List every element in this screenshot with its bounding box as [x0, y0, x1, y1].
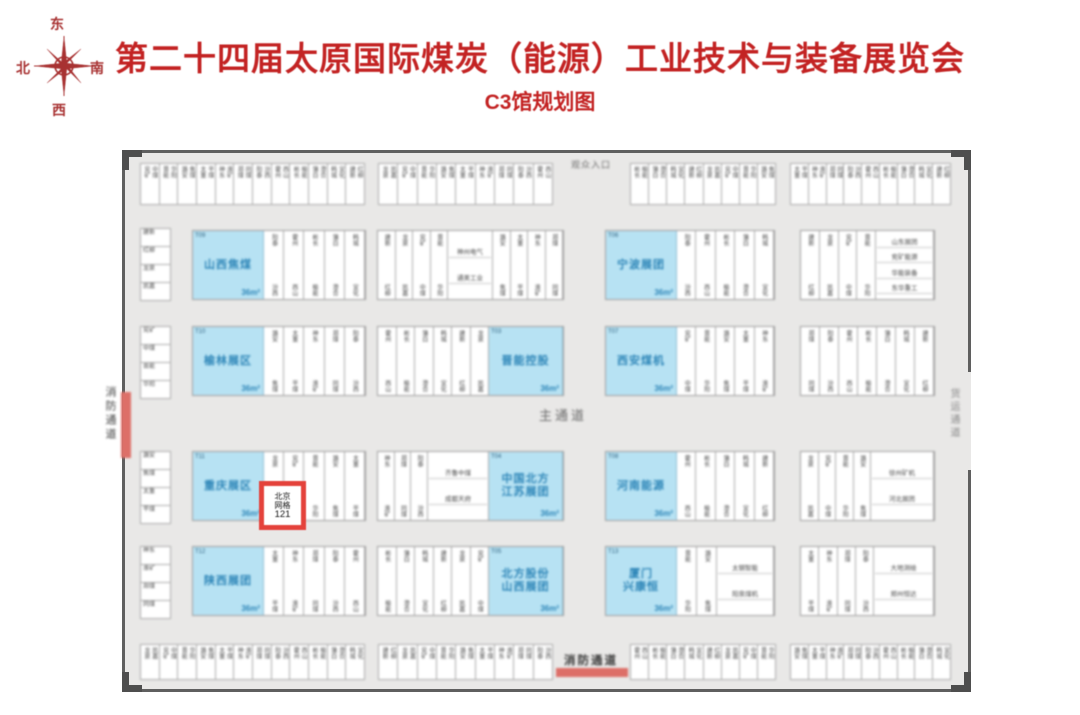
booth-cell: 太重平煤	[455, 163, 475, 205]
booth-text: 华能装备	[877, 267, 932, 279]
booth-cell: 龙泉凯嘉	[471, 327, 490, 395]
booth-cell: 郑煤同煤	[513, 644, 533, 680]
booth-number: T13	[608, 549, 618, 555]
booth-cell: 太重平煤	[196, 163, 216, 205]
booth-text: 神东	[497, 647, 503, 679]
booth-cell: 韩城宜化	[896, 327, 915, 395]
booth-text: 神州电气	[449, 246, 491, 258]
booth-cell: 太重平煤	[475, 644, 495, 680]
booth-text: 蒲白	[917, 647, 923, 679]
booth-cell: 晋能华阳	[739, 163, 758, 205]
booth-text: 中煤	[151, 166, 157, 204]
booth-text: 红柳	[921, 380, 927, 392]
booth-text: 太重	[291, 330, 297, 342]
booth-cell: 霍州西山	[677, 452, 696, 520]
booth-cell: 太重平煤	[735, 327, 754, 395]
booth-cell: 太重平煤	[808, 644, 827, 680]
booth-cell: 彬长榆能	[897, 644, 916, 680]
booth-text: 龙泉	[143, 647, 149, 679]
booth-cell: 神东	[140, 546, 171, 565]
booth-text: 太重	[271, 550, 277, 562]
island-block: T08河南能源36m²霍州西山彬长榆能蒲白澄合韩城宜化建新红柳	[605, 451, 775, 521]
booth-text: 平煤	[467, 166, 473, 204]
page-subtitle: C3馆规划图	[0, 86, 1080, 116]
blue-booth-label: 中国北方	[502, 473, 550, 486]
booth-area-label: 36m²	[241, 384, 260, 393]
booth-cell: 太重平煤	[511, 231, 529, 299]
booth-cell: 蒲白澄合	[308, 163, 328, 205]
booth-text: 平煤	[207, 166, 213, 204]
booth-cell: 阳泰汾西	[345, 327, 365, 395]
booth-cell: 兖矿中煤	[739, 644, 758, 680]
booth-text: 彬长	[703, 455, 709, 467]
booth-cell: 韩城宜化	[932, 644, 951, 680]
booth-cell: 郑煤同煤	[838, 547, 856, 615]
booth-cell: 龙泉凯嘉	[140, 644, 160, 680]
booth-cell: 太重	[140, 487, 171, 506]
booth-cell: 建新红柳	[703, 644, 722, 680]
booth-text: 龙泉	[271, 455, 277, 467]
booth-text: 太重	[218, 647, 224, 679]
booth-text: 神东	[761, 330, 767, 342]
booth-cell: 阳泰汾西	[677, 231, 696, 299]
booth-text: 龙泉	[723, 647, 729, 679]
booth-cell: 潞安焦煤	[716, 327, 735, 395]
booth-cell: 阳泰汾西	[411, 452, 428, 520]
booth-text: 兖矿	[741, 647, 747, 679]
booth-text: 汾西	[544, 647, 550, 679]
booth-text: 凯嘉	[476, 380, 482, 392]
island-block: 建新红柳龙泉凯嘉兖矿中煤晋能华阳山东展团兖矿能源华能装备东华重工	[800, 230, 935, 300]
booth-text: 韩城	[741, 455, 747, 467]
blue-booth-label: 西安煤机	[617, 355, 665, 368]
booth-text: 淮矿	[505, 647, 511, 679]
booth-text: 建新	[921, 330, 927, 342]
booth-text: 同煤	[525, 647, 531, 679]
booth-text: 平煤	[818, 647, 824, 679]
blue-booth: T04中国北方江苏展团36m²	[489, 452, 563, 520]
booth-text: 韩城	[351, 234, 357, 246]
booth-text: 淮矿	[244, 647, 250, 679]
booth-cell: 晋能华阳	[436, 644, 456, 680]
booth-text: 韩城	[687, 647, 693, 679]
booth-text: 建新	[381, 647, 387, 679]
booth-text: 潞安	[704, 550, 710, 562]
perimeter-strip: 龙泉凯嘉兖矿中煤晋能华阳潞安焦煤太重平煤神东淮矿郑煤同煤阳泰汾西霍州西山	[378, 163, 552, 205]
booth-text: 焦煤	[859, 505, 865, 517]
booth-text: 神东	[810, 166, 816, 204]
booth-text: 晋能	[180, 647, 186, 679]
booth-text: 西山	[683, 505, 689, 517]
booth-text: 中煤	[418, 284, 424, 296]
booth-text: 成都天府	[429, 493, 487, 505]
booth-cell: 太重平煤	[801, 547, 819, 615]
booth-text: 郑州恒达	[875, 588, 932, 600]
booth-text: 榆能	[300, 166, 306, 204]
booth-text: 彬长	[722, 234, 728, 246]
booth-text: 齐鲁中煤	[429, 467, 487, 479]
booth-text: 彬长	[651, 647, 657, 679]
booth-cell: 龙泉凯嘉	[703, 163, 722, 205]
booth-cell: 阳泰汾西	[513, 163, 533, 205]
booth-area-label: 36m²	[241, 288, 260, 297]
booth-text: 凯嘉	[731, 647, 737, 679]
booth-cell-wide: 齐鲁中煤成都天府	[428, 452, 489, 520]
booth-cell: 潞安	[140, 451, 171, 470]
booth-cell: 神东淮矿	[378, 452, 395, 520]
booth-cell: 晋能	[140, 362, 171, 381]
perimeter-strip: 太重平煤神东淮矿郑煤同煤阳泰汾西霍州西山彬长榆能蒲白澄合韩城宜化建新红柳	[790, 163, 950, 205]
blue-booth: T07西安煤机36m²	[606, 327, 677, 395]
booth-text: 霍州	[274, 166, 280, 204]
booth-text: 阳泰	[683, 234, 689, 246]
booth-text: 宜化	[421, 600, 427, 612]
booth-cell: 潞安焦煤	[436, 163, 456, 205]
booth-cell: 潞安焦煤	[854, 452, 872, 520]
booth-text: 霍州	[864, 166, 870, 204]
blue-booth-label: 北方股份	[502, 568, 550, 581]
booth-text: 蒲白	[331, 234, 337, 246]
booth-text: 蒲白	[421, 330, 427, 342]
booth-cell: 霍州西山	[271, 163, 291, 205]
booth-text: 潞安	[760, 166, 766, 204]
booth-text: 西山	[384, 380, 390, 392]
booth-text: 澄合	[677, 647, 683, 679]
booth-text: 郑煤	[807, 330, 813, 342]
booth-text: 同煤	[807, 380, 813, 392]
booth-cell: 阳泰汾西	[861, 644, 880, 680]
booth-text: 太重	[793, 166, 799, 204]
booth-text: 西山	[281, 166, 287, 204]
booth-text: 兖矿能源	[877, 251, 932, 263]
booth-text: 澄合	[338, 647, 344, 679]
booth-text: 神东	[311, 330, 317, 342]
blue-booth-label: 晋能控股	[502, 355, 550, 368]
booth-text: 兖矿	[291, 455, 297, 467]
booth-text: 同煤	[244, 166, 250, 204]
booth-cell: 神东淮矿	[494, 644, 514, 680]
booth-cell: 霍州西山	[861, 163, 880, 205]
booth-cell: 神东淮矿	[215, 163, 235, 205]
booth-text: 西山	[300, 647, 306, 679]
booth-cell: 建新红柳	[378, 644, 398, 680]
blue-booth-label: 陕西展团	[204, 575, 252, 588]
booth-text: 中煤	[476, 600, 482, 612]
blue-booth-label: 榆林展区	[204, 355, 252, 368]
booth-text: 郑煤	[331, 330, 337, 342]
booth-cell: 韩城宜化	[684, 644, 703, 680]
booth-text: 宜化	[695, 647, 701, 679]
booth-text: 韩城	[439, 330, 445, 342]
booth-area-label: 36m²	[654, 288, 673, 297]
booth-cell: 蒲白澄合	[666, 644, 685, 680]
booth-text: 兖矿	[824, 455, 830, 467]
perimeter-strip: 建新红柳龙泉凯嘉	[140, 228, 171, 300]
booth-cell: 潞安焦煤	[325, 452, 345, 520]
booth-text: 红柳	[356, 166, 362, 204]
booth-cell: 彬长榆能	[308, 644, 328, 680]
booth-text: 彬长	[311, 234, 317, 246]
booth-text: 兖矿	[143, 166, 149, 204]
booth-text: 大地测绘	[875, 562, 932, 574]
booth-number: T07	[608, 329, 618, 335]
booth-cell: 兖矿中煤	[721, 163, 740, 205]
booth-text: 蒲白	[402, 550, 408, 562]
island-block: 太重平煤神东淮矿郑煤同煤阳泰汾西大地测绘郑州恒达	[800, 546, 935, 616]
booth-text: 霍州	[292, 647, 298, 679]
booth-cell: 霍州西山	[839, 327, 858, 395]
booth-cell: 蒲白澄合	[397, 547, 416, 615]
booth-text: 榆能	[384, 600, 390, 612]
booth-text: 蒲白	[741, 234, 747, 246]
highlight-booth: 北京 网格 121	[259, 481, 306, 530]
booth-text: 西山	[845, 380, 851, 392]
booth-cell: 兖矿中煤	[819, 452, 837, 520]
booth-text: 榆能	[311, 284, 317, 296]
booth-text: 蒲白	[722, 455, 728, 467]
booth-text: 建新	[761, 455, 767, 467]
booth-cell: 彬长榆能	[648, 644, 667, 680]
booth-cell: 神东淮矿	[528, 231, 546, 299]
booth-cell: 彬长榆能	[378, 547, 397, 615]
booth-text: 中煤	[749, 647, 755, 679]
booth-text: 中煤	[409, 166, 415, 204]
booth-text: 同煤	[836, 166, 842, 204]
booth-text: 龙泉	[806, 455, 812, 467]
booth-text: 汾西	[854, 166, 860, 204]
booth-text: 华阳	[863, 284, 869, 296]
booth-cell: 韩城宜化	[327, 163, 347, 205]
booth-cell: 霍州西山	[345, 547, 365, 615]
booth-cell: 郑煤同煤	[801, 327, 820, 395]
booth-number: T11	[195, 454, 205, 460]
highlight-booth-number: 121	[275, 510, 291, 519]
booth-text: 淮矿	[761, 380, 767, 392]
booth-text: 神东	[533, 234, 539, 246]
blue-booth-label: 重庆展区	[204, 480, 252, 493]
booth-text: 彬长	[402, 330, 408, 342]
booth-text: 汾西	[683, 284, 689, 296]
booth-text: 平煤	[741, 380, 747, 392]
booth-text: 华阳	[169, 166, 175, 204]
booth-text: 焦煤	[467, 647, 473, 679]
booth-cell: 兖矿	[140, 326, 171, 345]
island-block: T06宁波展团36m²阳泰汾西霍州西山彬长榆能蒲白澄合韩城宜化	[605, 230, 775, 300]
booth-area-label: 36m²	[540, 509, 559, 518]
booth-cell: 霍州西山	[696, 231, 715, 299]
blue-booth: T08河南能源36m²	[606, 452, 677, 520]
booth-text: 韩城	[935, 647, 941, 679]
booth-text: 中煤	[824, 505, 830, 517]
booth-text: 郑煤	[399, 455, 405, 467]
booth-cell: 神东淮矿	[284, 547, 304, 615]
booth-text: 郑煤	[828, 166, 834, 204]
booth-cell: 神东淮矿	[475, 163, 495, 205]
booth-text: 潞安	[199, 647, 205, 679]
booth-text: 兖矿	[723, 166, 729, 204]
booth-text: 澄合	[741, 284, 747, 296]
booth-text: 华阳	[841, 505, 847, 517]
booth-text: 郑煤	[846, 647, 852, 679]
booth-text: 宜化	[338, 166, 344, 204]
booth-text: 彬长	[384, 550, 390, 562]
blue-booth-label: 山西展团	[502, 581, 550, 594]
blue-booth: T06宁波展团36m²	[606, 231, 677, 299]
booth-text: 龙泉	[476, 330, 482, 342]
booth-text: 淮矿	[836, 647, 842, 679]
booth-cell: 韩城宜化	[345, 644, 365, 680]
booth-cell-group: 霍州西山彬长榆能蒲白澄合韩城宜化建新红柳龙泉凯嘉	[378, 327, 489, 395]
booth-text: 晋能	[741, 166, 747, 204]
booth-text: 晋能	[311, 455, 317, 467]
booth-cell: 晋能华阳	[836, 452, 854, 520]
booth-text: 宜化	[902, 380, 908, 392]
booth-text: 淮矿	[225, 166, 231, 204]
booth-text: 宜化	[439, 380, 445, 392]
booth-text: 华阳	[447, 647, 453, 679]
perimeter-strip: 建新红柳龙泉凯嘉兖矿中煤晋能华阳潞安焦煤太重平煤神东淮矿郑煤同煤阳泰汾西	[378, 644, 552, 680]
right-freight-exit-label: 货运通道	[946, 388, 961, 440]
booth-text: 郑煤	[255, 647, 261, 679]
booth-cell: 潞安焦煤	[697, 547, 717, 615]
booth-text: 阳泰	[255, 166, 261, 204]
booth-text: 郑煤	[843, 550, 849, 562]
blue-booth: T10榆林展区36m²	[193, 327, 264, 395]
booth-text: 建新	[439, 550, 445, 562]
booth-cell: 建新红柳	[434, 547, 453, 615]
island-block: 彬长榆能蒲白澄合韩城宜化建新红柳龙泉凯嘉兖矿中煤T05北方股份山西展团36m²	[377, 546, 564, 616]
booth-text: 凯嘉	[806, 505, 812, 517]
booth-text: 同煤	[399, 505, 405, 517]
booth-text: 同煤	[843, 600, 849, 612]
booth-cell: 华阳	[140, 380, 171, 399]
fire-exit-bar-left	[121, 392, 131, 458]
booth-cell-wide: 太钢智能阳泉煤机	[717, 547, 774, 615]
booth-text: 红柳	[439, 600, 445, 612]
perimeter-strip: 神东淮矿郑煤同煤	[140, 546, 171, 618]
booth-text: 蒲白	[311, 166, 317, 204]
booth-cell: 彬长榆能	[397, 327, 416, 395]
booth-text: 榆能	[889, 166, 895, 204]
booth-text: 华阳	[311, 505, 317, 517]
booth-text: 淮矿	[533, 284, 539, 296]
booth-text: 龙泉	[705, 166, 711, 204]
booth-text: 榆能	[402, 380, 408, 392]
booth-cell: 淮矿	[140, 564, 171, 583]
booth-text: 澄合	[659, 166, 665, 204]
booth-cell: 兖矿中煤	[677, 327, 696, 395]
booth-cell: 龙泉凯嘉	[452, 547, 471, 615]
booth-text: 平煤	[486, 647, 492, 679]
booth-cell: 潞安焦煤	[790, 644, 809, 680]
booth-cell-group: 太重平煤神东淮矿郑煤同煤阳泰汾西霍州西山	[264, 547, 365, 615]
booth-cell-group: 彬长榆能蒲白澄合韩城宜化建新红柳龙泉凯嘉兖矿中煤	[378, 547, 489, 615]
booth-cell-group: 建新红柳龙泉凯嘉兖矿中煤晋能华阳	[801, 231, 876, 299]
booth-text: 宜化	[677, 166, 683, 204]
booth-text: 西山	[703, 284, 709, 296]
booth-text: 太重	[516, 234, 522, 246]
booth-text: 焦煤	[722, 380, 728, 392]
booth-text: 韩城	[902, 330, 908, 342]
booth-text: 建新	[935, 166, 941, 204]
booth-cell-group: 阳泰汾西霍州西山彬长榆能蒲白澄合韩城宜化	[677, 231, 774, 299]
booth-text: 焦煤	[447, 166, 453, 204]
booth-text: 太重	[807, 550, 813, 562]
booth-text: 建新	[383, 234, 389, 246]
booth-text: 韩城	[761, 234, 767, 246]
booth-text: 平煤	[516, 284, 522, 296]
booth-text: 西山	[640, 647, 646, 679]
booth-text: 潞安	[859, 455, 865, 467]
booth-text: 蒲白	[899, 166, 905, 204]
booth-number: T04	[491, 454, 501, 460]
booth-text: 榆能	[703, 505, 709, 517]
booth-text: 神东	[478, 166, 484, 204]
booth-number: T09	[195, 233, 205, 239]
booth-text: 淮矿	[291, 600, 297, 612]
booth-cell: 蒲白澄合	[914, 644, 933, 680]
booth-cell: 建新红柳	[378, 231, 396, 299]
blue-booth-label: 宁波展团	[617, 259, 665, 272]
booth-text: 红柳	[761, 505, 767, 517]
booth-text: 平煤	[351, 505, 357, 517]
booth-cell: 龙泉凯嘉	[801, 452, 819, 520]
booth-text: 淮矿	[383, 505, 389, 517]
booth-text: 平煤	[271, 600, 277, 612]
booth-text: 兖矿	[476, 550, 482, 562]
booth-text: 阳泰	[351, 330, 357, 342]
booth-cell: 龙泉凯嘉	[396, 231, 414, 299]
booth-number: T08	[608, 454, 618, 460]
booth-text: 红柳	[695, 166, 701, 204]
booth-text: 西山	[544, 166, 550, 204]
booth-text: 焦煤	[767, 166, 773, 204]
booth-cell: 太重平煤	[790, 163, 809, 205]
booth-cell: 兖矿中煤	[471, 547, 490, 615]
booth-cell: 蒲白澄合	[325, 231, 345, 299]
booth-text: 潞安	[722, 330, 728, 342]
booth-text: 平煤	[807, 600, 813, 612]
booth-text: 阳泰	[826, 330, 832, 342]
booth-text: 韩城	[348, 647, 354, 679]
booth-text: 宜化	[741, 505, 747, 517]
booth-text: 龙泉	[401, 234, 407, 246]
booth-text: 凯嘉	[458, 600, 464, 612]
booth-text: 红柳	[942, 166, 948, 204]
booth-text: 蒲白	[669, 647, 675, 679]
booth-text: 澄合	[319, 166, 325, 204]
booth-cell: 晋能华阳	[757, 644, 776, 680]
booth-text: 中煤	[683, 380, 689, 392]
booth-cell: 郑煤同煤	[546, 231, 564, 299]
booth-cell-wide: 神州电气通美工业	[448, 231, 493, 299]
booth-text: 同煤	[505, 166, 511, 204]
booth-cell-group: 晋能华阳潞安焦煤	[677, 547, 717, 615]
booth-text: 晋能	[760, 647, 766, 679]
booth-cell-wide: 大地测绘郑州恒达	[874, 547, 934, 615]
booth-text: 太重	[351, 455, 357, 467]
booth-cell: 红柳	[140, 246, 171, 265]
island-block: 龙泉凯嘉兖矿中煤晋能华阳潞安焦煤徐州矿机河北展团	[800, 451, 935, 521]
island-block: 建新红柳龙泉凯嘉兖矿中煤晋能华阳神州电气通美工业潞安焦煤太重平煤神东淮矿郑煤同煤	[377, 230, 564, 300]
blue-booth-label: 厦门	[629, 568, 653, 581]
booth-text: 郑煤	[497, 166, 503, 204]
booth-text: 龙泉	[400, 647, 406, 679]
booth-cell: 蒲白澄合	[716, 452, 735, 520]
booth-area-label: 36m²	[654, 604, 673, 613]
booth-cell: 阳泰汾西	[856, 547, 874, 615]
booth-text: 彬长	[311, 647, 317, 679]
